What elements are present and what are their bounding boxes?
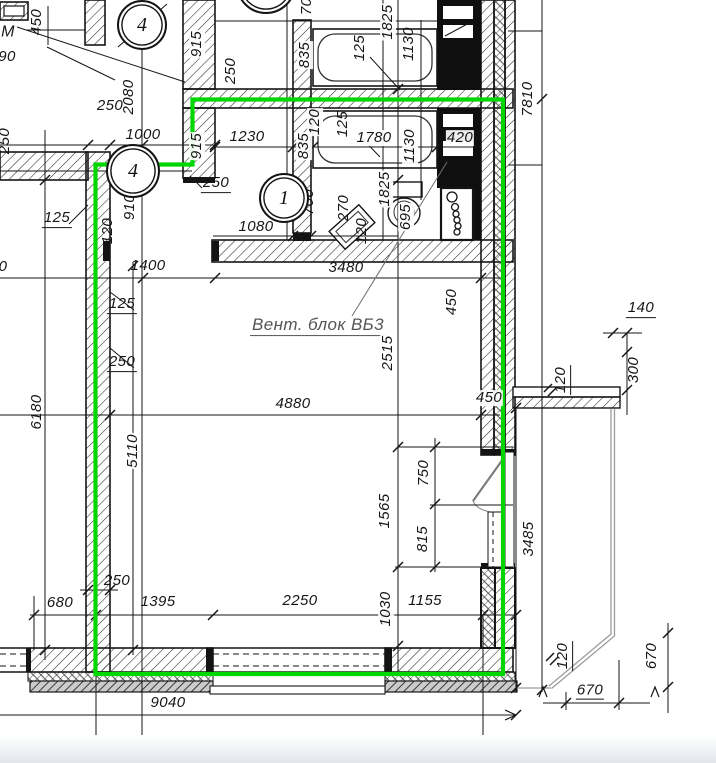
page-edge xyxy=(0,735,716,763)
vent-shaft xyxy=(437,0,481,240)
walls-group xyxy=(0,0,517,692)
toilet xyxy=(388,182,422,228)
bathtub-top xyxy=(313,29,437,86)
window-bottom xyxy=(206,648,392,694)
floor-plan-viewport: М904502502080250100091525091525012309101… xyxy=(0,0,716,763)
balcony-door xyxy=(473,452,514,568)
window-left-edge xyxy=(0,648,30,672)
balcony-outline xyxy=(517,409,615,689)
balcony-slab xyxy=(513,387,620,408)
plan-linework xyxy=(0,0,716,763)
bathtub-bottom xyxy=(313,111,437,168)
top-left-opening xyxy=(4,6,24,16)
